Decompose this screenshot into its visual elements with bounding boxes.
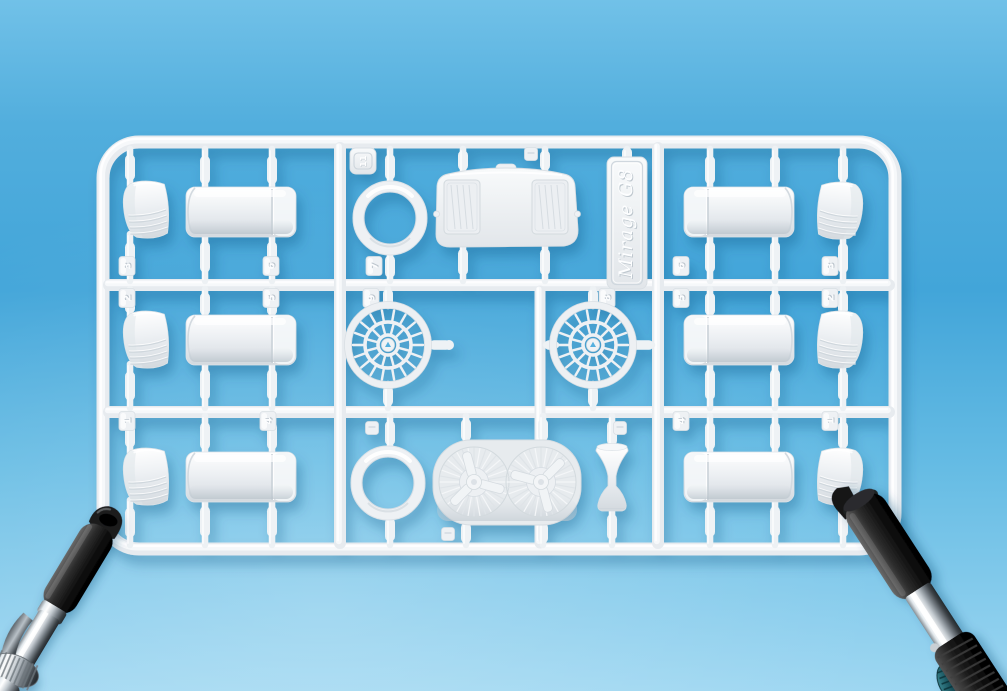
sprue-runner-vertical-right xyxy=(656,145,658,543)
part-number: 2 xyxy=(826,294,837,301)
sprue-gate xyxy=(841,235,843,281)
sprue-gate xyxy=(203,149,205,191)
sprue-gate xyxy=(431,340,454,350)
sprue-gate xyxy=(543,149,545,172)
sprue-gate xyxy=(841,149,843,187)
part-nacelle-drum xyxy=(186,315,296,365)
part-nacelle-drum xyxy=(684,315,794,365)
fan-rotor xyxy=(506,447,576,517)
part-number: 9 xyxy=(367,294,378,301)
part-number-tab: 33 xyxy=(822,257,838,276)
part-number-tab: 22 xyxy=(119,289,135,308)
part-number-tab: 44 xyxy=(673,412,689,431)
sprue-gate xyxy=(203,361,205,408)
part-number: 5 xyxy=(677,294,688,301)
part-nacelle-drum xyxy=(186,452,296,502)
part-number-tab: 66 xyxy=(673,257,689,276)
part-number-tab: 11 xyxy=(822,412,838,431)
sprue-gate xyxy=(773,149,775,191)
blank-tab xyxy=(614,422,627,435)
blank-tab xyxy=(525,148,538,161)
fan-rotor xyxy=(439,447,509,517)
sprue-gate xyxy=(203,416,205,456)
part-number: 6 xyxy=(267,262,278,269)
sprue-gate xyxy=(270,498,272,545)
sprue-gate xyxy=(773,361,775,408)
sprue-gate xyxy=(708,416,710,456)
cavity-mark: 11 xyxy=(359,155,368,167)
sprue-gate xyxy=(388,416,390,450)
part-number: 7 xyxy=(370,262,381,269)
sprue-gate xyxy=(773,498,775,545)
part-number-tab: 22 xyxy=(822,289,838,308)
part-number: 3 xyxy=(123,262,134,269)
cavity-mark-badge: 1111 xyxy=(350,148,376,174)
part-number: 6 xyxy=(677,262,688,269)
part-number-tab: 55 xyxy=(673,289,689,308)
part-number-tab: 55 xyxy=(263,289,279,308)
photo-scene: 332266557799886655332211444411 Mirage G8… xyxy=(0,0,1007,691)
sprue-runner-vertical-left xyxy=(338,145,340,543)
sprue-gate xyxy=(464,416,466,444)
part-number: 1 xyxy=(123,417,134,424)
sprue-gate xyxy=(128,500,130,545)
sprue-gate xyxy=(543,243,545,281)
blank-tab xyxy=(442,528,455,541)
part-nacelle-drum xyxy=(684,187,794,237)
sprue-gate xyxy=(461,243,463,281)
sprue-gate xyxy=(461,149,463,172)
part-number-tab: 33 xyxy=(119,257,135,276)
part-number: 4 xyxy=(677,417,688,424)
sprue-gate xyxy=(708,498,710,545)
part-number: 8 xyxy=(603,294,614,301)
sprue-gate xyxy=(270,149,272,191)
sprue-gate xyxy=(128,149,130,186)
part-nacelle-drum xyxy=(186,187,296,237)
sprue-gate xyxy=(203,233,205,281)
sprue-gate xyxy=(708,233,710,281)
part-number-tab: 11 xyxy=(119,412,135,431)
sprue-gate xyxy=(773,289,775,319)
sprue-gate xyxy=(708,361,710,408)
part-number: 5 xyxy=(267,294,278,301)
part-number: 4 xyxy=(264,417,275,424)
sprue-runner-horizontal-lower xyxy=(107,409,889,412)
sprue-gate xyxy=(708,149,710,191)
part-number-tab: 66 xyxy=(263,257,279,276)
sprue-gate xyxy=(203,289,205,319)
part-twin-fan-unit xyxy=(433,440,581,525)
part-number-tab: 44 xyxy=(260,412,276,431)
sprue-gate xyxy=(388,252,390,281)
sprue-gate xyxy=(773,416,775,456)
sprue-gate xyxy=(773,233,775,281)
sprue-gate xyxy=(270,361,272,408)
sprue-gate xyxy=(708,289,710,319)
sprue-gate xyxy=(203,498,205,545)
sprue-gate xyxy=(388,149,390,185)
blank-tab xyxy=(366,422,379,435)
part-roof-panel xyxy=(434,164,581,247)
sprue-gate xyxy=(841,363,843,408)
brand-plate: Mirage G8Mirage G8 xyxy=(607,157,647,289)
part-nacelle-drum xyxy=(684,452,794,502)
part-number-tab: 77 xyxy=(366,257,382,276)
brand-plate-text: Mirage G8 xyxy=(615,168,637,279)
part-number: 1 xyxy=(826,417,837,424)
sprue-gate xyxy=(610,509,612,545)
sprue-gate xyxy=(128,364,130,408)
part-number: 2 xyxy=(123,294,134,301)
sprue-runner-horizontal-upper xyxy=(107,282,889,285)
part-number: 3 xyxy=(826,262,837,269)
